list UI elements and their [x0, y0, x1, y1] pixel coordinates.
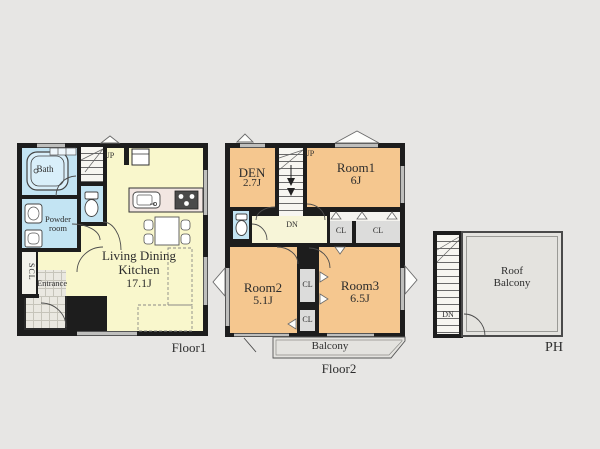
- stair-arrow-down: [287, 165, 295, 196]
- powder-room-label: Powder room: [40, 215, 76, 233]
- bath-counter-icon: [50, 148, 76, 155]
- closet-b-label: CL: [356, 227, 400, 235]
- ph-label: PH: [538, 341, 570, 356]
- floor-plan-canvas: Bath Powder room UP SCL Entrance Living …: [0, 0, 600, 449]
- balcony-label: Balcony: [300, 341, 360, 353]
- bath-label: Bath: [25, 165, 65, 174]
- kitchen-sink-icon: [133, 192, 160, 208]
- room1-size-label: 6J: [329, 174, 383, 187]
- room3-size-label: 6.5J: [332, 292, 388, 305]
- dining-table-icon: [144, 217, 190, 245]
- closet-c-label: CL: [299, 281, 316, 289]
- entrance-label: Entrance: [35, 279, 69, 288]
- up-label-floor2: UP: [304, 150, 322, 158]
- stove-icon: [175, 191, 198, 209]
- room2-size-label: 5.1J: [235, 294, 291, 307]
- toilet-icon: [85, 192, 98, 217]
- stair-fan-ph: [437, 237, 459, 262]
- door-arc-ph: [464, 314, 485, 336]
- scl-label: SCL: [22, 254, 35, 290]
- dn-label-ph: DN: [438, 311, 458, 319]
- roof-balcony-label: Roof Balcony: [482, 266, 542, 289]
- closet-d-label: CL: [299, 316, 316, 324]
- refrigerator-icon: [132, 149, 149, 165]
- ldk-label: Living Dining Kitchen: [96, 249, 182, 276]
- dn-label-floor2: DN: [282, 221, 302, 229]
- floor2-label: Floor2: [316, 362, 362, 376]
- ldk-size-label: 17.1J: [96, 277, 182, 290]
- floor1-label: Floor1: [166, 341, 212, 355]
- closet-a-label: CL: [330, 227, 352, 235]
- den-size-label: 2.7J: [231, 178, 273, 190]
- stair-fan-floor1: [81, 149, 103, 172]
- toilet-icon: [236, 214, 247, 236]
- up-label-floor1: UP: [104, 152, 122, 160]
